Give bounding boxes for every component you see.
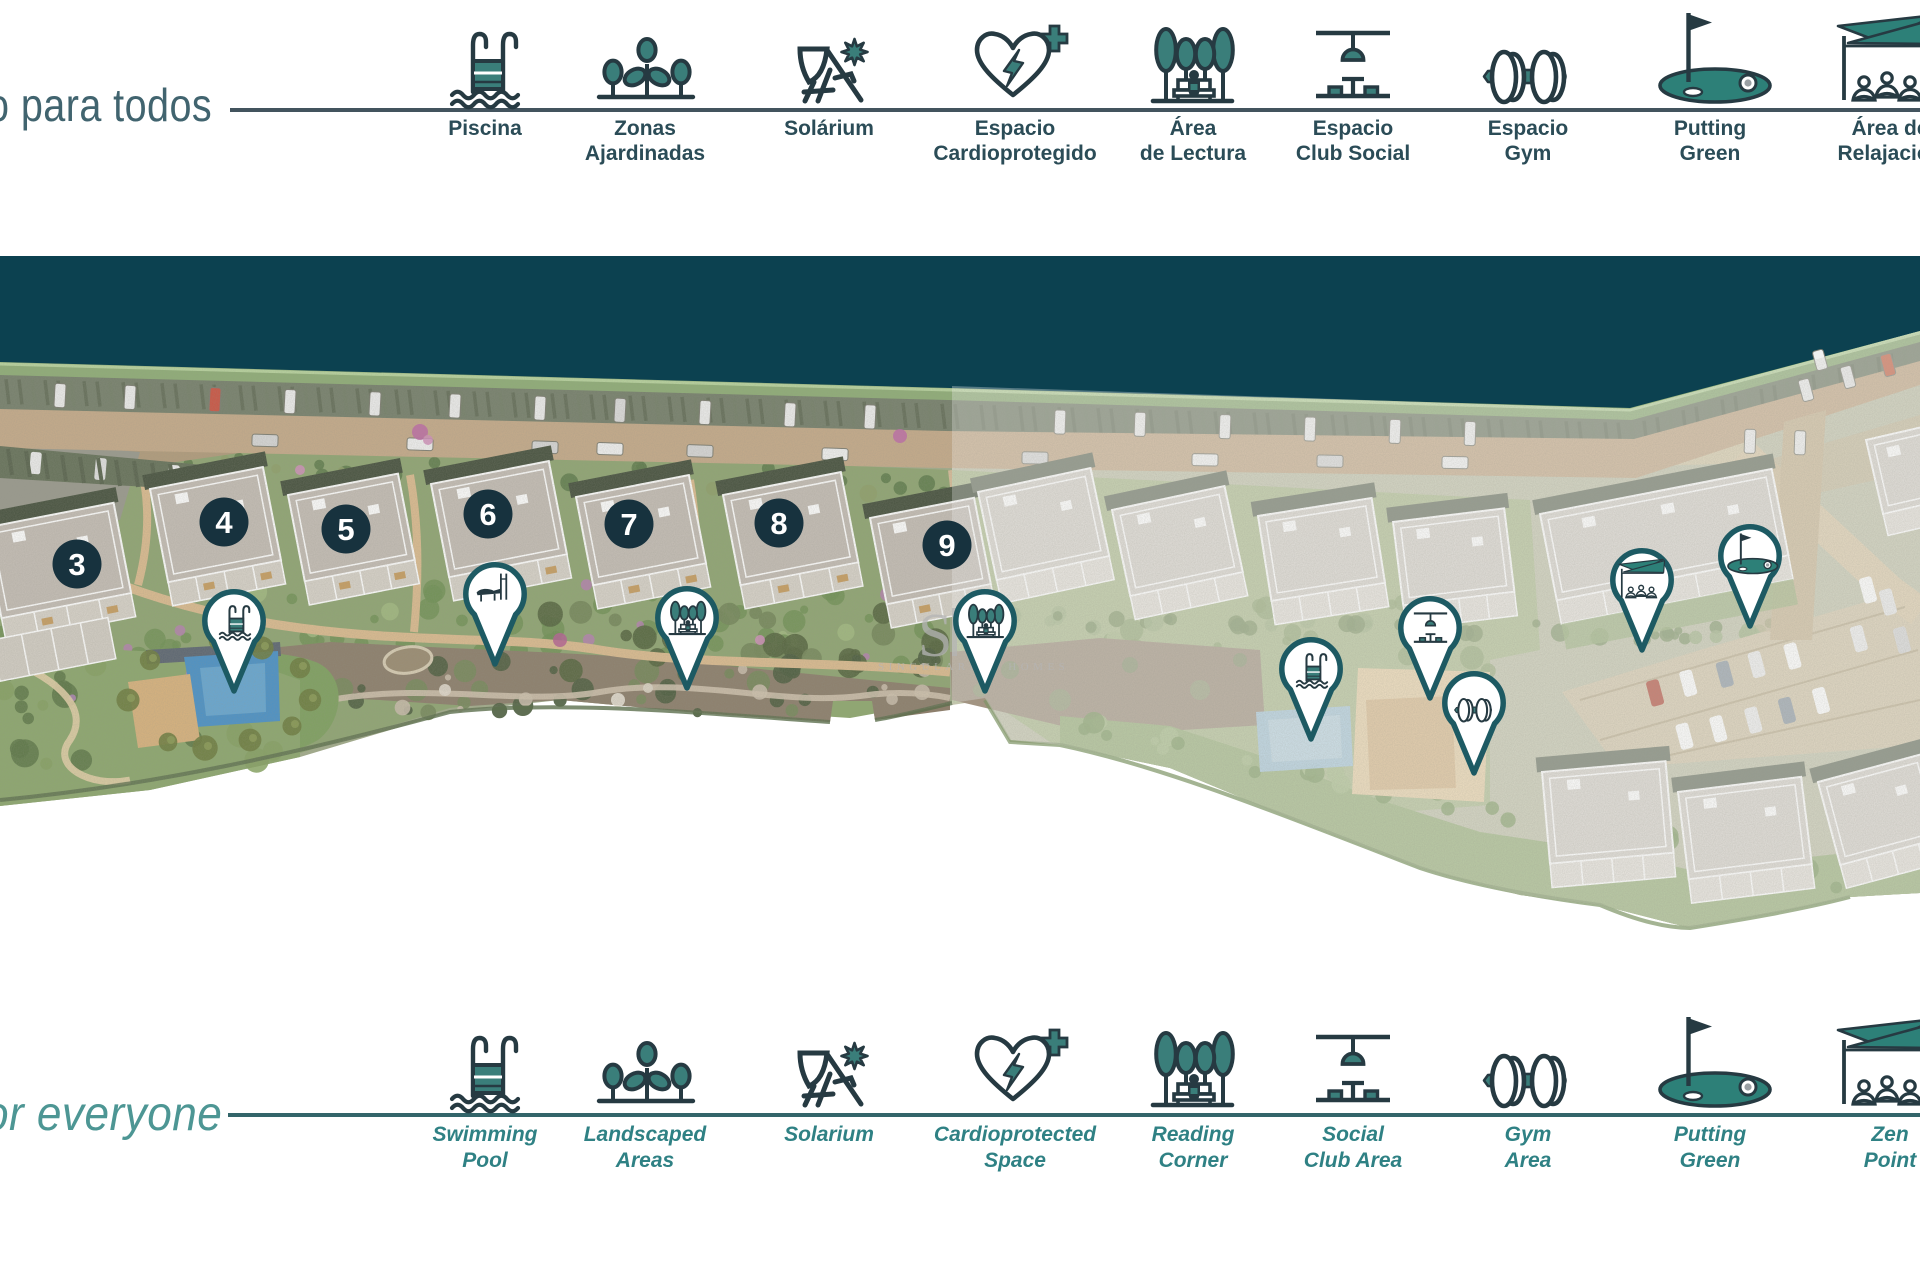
svg-text:8: 8 bbox=[770, 506, 787, 541]
svg-text:3: 3 bbox=[68, 547, 85, 582]
svg-text:6: 6 bbox=[479, 497, 496, 532]
svg-text:7: 7 bbox=[620, 507, 637, 542]
svg-text:S: S bbox=[918, 602, 952, 670]
svg-text:5: 5 bbox=[337, 512, 354, 547]
svg-text:9: 9 bbox=[938, 528, 955, 563]
svg-text:4: 4 bbox=[215, 505, 233, 540]
